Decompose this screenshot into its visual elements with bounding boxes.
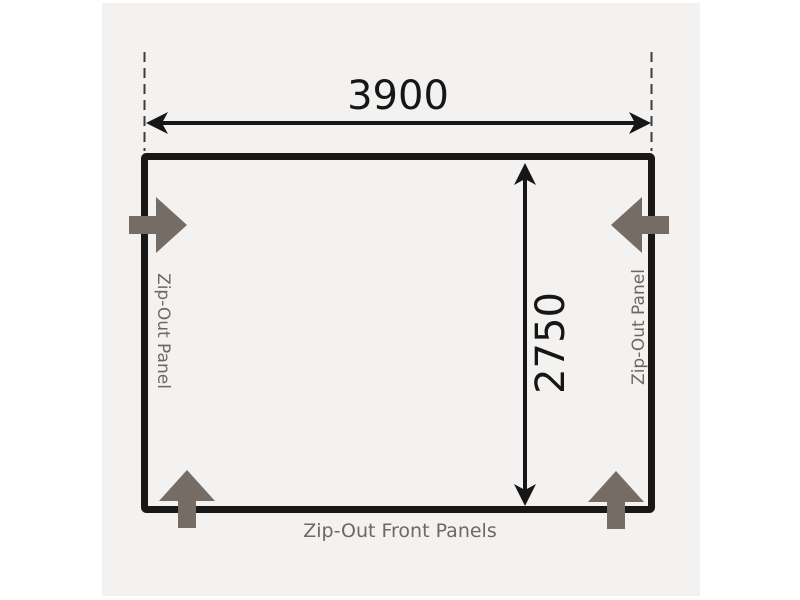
zip-out-arrow-front-right-icon — [588, 471, 644, 529]
right-zip-out-panel-label: Zip-Out Panel — [628, 247, 650, 407]
footprint-outline — [145, 157, 652, 510]
width-dimension-value: 3900 — [298, 76, 498, 116]
zip-out-arrow-left-icon — [129, 197, 187, 253]
left-zip-out-panel-label: Zip-Out Panel — [152, 251, 174, 411]
front-zip-out-panels-label: Zip-Out Front Panels — [250, 519, 550, 543]
awning-floorplan-diagram: 3900 2750 Zip-Out Panel Zip-Out Panel Zi… — [0, 0, 800, 600]
zip-out-arrow-right-icon — [611, 197, 669, 253]
zip-out-arrow-front-left-icon — [159, 470, 215, 528]
depth-dimension-value: 2750 — [529, 243, 573, 443]
